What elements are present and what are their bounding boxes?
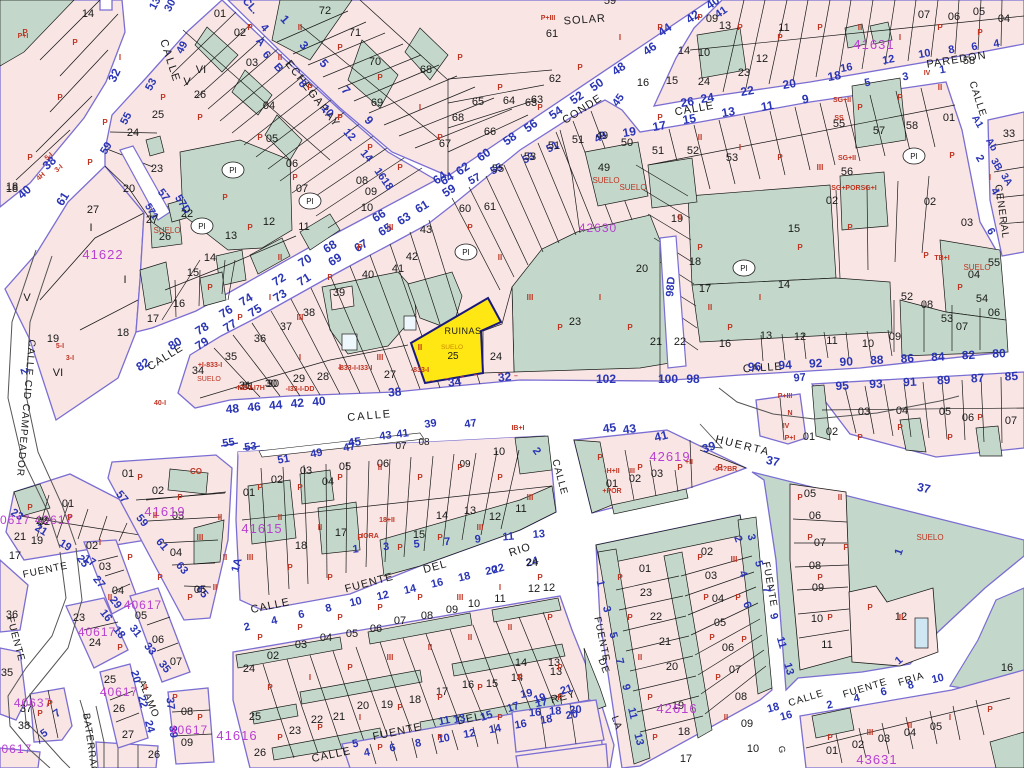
svg-text:P: P [847,223,853,232]
svg-text:10: 10 [468,598,480,610]
svg-text:-H+II: -H+II [604,468,619,475]
svg-text:P: P [292,173,298,182]
svg-text:P: P [160,93,166,102]
svg-text:03: 03 [99,561,111,573]
svg-text:29: 29 [293,373,305,385]
svg-text:03: 03 [651,468,663,480]
svg-text:P: P [437,133,443,142]
svg-text:II: II [143,683,147,692]
svg-text:01: 01 [639,563,651,575]
svg-text:61: 61 [546,28,558,40]
svg-text:21: 21 [659,636,671,648]
svg-text:I: I [989,173,991,182]
svg-text:11: 11 [502,531,515,544]
svg-text:26: 26 [113,703,125,715]
svg-text:52: 52 [687,145,699,157]
svg-text:P: P [677,463,683,472]
svg-text:07: 07 [1005,415,1017,427]
svg-text:05: 05 [346,628,358,640]
svg-text:12: 12 [489,511,501,523]
svg-text:14: 14 [436,510,448,522]
svg-text:P: P [317,723,323,732]
svg-text:40617: 40617 [0,742,32,756]
svg-text:IV: IV [924,70,931,77]
svg-text:16: 16 [173,298,185,310]
svg-text:-I33-I-DD: -I33-I-DD [286,386,315,393]
svg-text:02: 02 [234,27,246,39]
svg-text:P: P [857,103,863,112]
svg-text:20: 20 [636,263,648,275]
svg-text:P: P [37,709,43,718]
svg-text:14: 14 [678,45,690,57]
svg-text:5-I: 5-I [56,343,64,350]
svg-text:18: 18 [689,256,701,268]
svg-text:P: P [117,643,123,652]
svg-text:51: 51 [276,453,290,467]
svg-text:P: P [267,683,273,692]
svg-text:P: P [923,251,929,260]
svg-text:16: 16 [637,77,649,89]
svg-text:41: 41 [392,263,404,275]
svg-text:23: 23 [640,587,652,599]
svg-text:P: P [437,693,443,702]
svg-text:P: P [177,493,183,502]
svg-text:RUINAS: RUINAS [444,326,481,336]
svg-text:07: 07 [394,615,406,627]
svg-text:P: P [857,433,863,442]
svg-text:TB+I: TB+I [934,255,949,262]
svg-text:58: 58 [963,55,975,67]
svg-text:59: 59 [604,0,616,7]
svg-text:09: 09 [446,604,458,616]
svg-text:06: 06 [988,307,1000,319]
svg-text:05: 05 [973,6,985,18]
svg-text:I: I [949,713,951,722]
svg-text:80: 80 [992,346,1006,361]
svg-text:35: 35 [1,667,13,679]
svg-text:P: P [297,623,303,632]
svg-text:94: 94 [778,358,792,373]
svg-text:III: III [527,293,534,302]
svg-text:20: 20 [666,661,678,673]
svg-text:08: 08 [921,299,933,311]
svg-text:P: P [949,151,955,160]
svg-text:15: 15 [788,223,800,235]
svg-text:04: 04 [998,13,1010,25]
svg-text:–: – [514,373,518,380]
svg-text:N: N [787,410,792,417]
svg-text:SG+PORSG+I: SG+PORSG+I [831,185,877,192]
svg-text:II: II [223,553,227,562]
svg-text:88: 88 [870,353,884,368]
svg-text:10: 10 [698,47,710,59]
svg-text:13: 13 [532,528,545,541]
svg-text:04: 04 [896,405,908,417]
svg-text:SG+II: SG+II [833,97,851,104]
svg-text:41619: 41619 [144,504,185,519]
svg-text:18: 18 [295,540,307,552]
svg-text:SUELO: SUELO [197,376,221,383]
svg-text:09: 09 [741,718,753,730]
svg-text:II: II [278,53,282,62]
svg-text:P: P [517,673,523,682]
svg-text:P: P [797,243,803,252]
svg-text:P: P [657,23,663,32]
svg-text:14: 14 [778,279,790,291]
svg-text:06: 06 [152,634,164,646]
svg-text:02: 02 [701,546,713,558]
svg-text:-833-I-I33-I: -833-I-I33-I [338,365,373,372]
svg-text:40: 40 [312,394,327,409]
svg-text:P: P [697,553,703,562]
svg-text:03: 03 [295,639,307,651]
svg-text:72: 72 [319,5,331,17]
svg-text:08: 08 [181,706,193,718]
svg-text:10: 10 [917,47,931,61]
svg-text:II: II [678,213,682,222]
svg-text:12: 12 [794,331,806,343]
svg-text:05: 05 [339,461,351,473]
svg-text:P: P [977,413,983,422]
svg-text:24: 24 [700,90,716,106]
svg-text:49: 49 [598,162,610,174]
svg-text:PI: PI [229,166,237,175]
svg-text:P: P [617,573,623,582]
svg-text:96: 96 [748,359,762,374]
svg-text:13: 13 [464,505,476,517]
svg-text:P: P [537,573,543,582]
svg-text:SUELO: SUELO [619,183,646,192]
svg-text:I: I [89,222,92,234]
svg-text:P: P [57,93,63,102]
svg-text:05: 05 [714,617,726,629]
svg-text:51: 51 [572,134,584,146]
svg-text:P: P [172,693,178,702]
svg-text:66: 66 [484,126,496,138]
svg-text:II: II [724,713,728,722]
svg-text:41616: 41616 [216,728,257,743]
svg-text:39: 39 [333,287,345,299]
svg-text:III: III [817,163,824,172]
svg-text:26: 26 [148,749,160,761]
svg-text:II: II [153,511,157,520]
svg-text:V: V [23,292,31,304]
svg-text:–: – [430,378,434,385]
svg-text:P: P [647,693,653,702]
svg-text:P: P [197,113,203,122]
svg-text:46: 46 [247,399,262,414]
svg-text:12: 12 [462,727,476,741]
svg-text:PI: PI [740,264,748,273]
svg-text:60: 60 [459,203,471,215]
svg-text:14: 14 [82,8,94,20]
svg-text:20: 20 [782,76,798,92]
svg-text:85: 85 [1004,369,1018,384]
svg-text:19: 19 [381,699,393,711]
svg-text:1: 1 [352,543,359,555]
svg-text:P+III: P+III [541,15,556,22]
svg-text:19: 19 [31,535,43,547]
svg-text:P: P [287,563,293,572]
svg-text:21: 21 [333,711,345,723]
svg-text:40617: 40617 [100,685,138,699]
svg-text:P: P [709,633,715,642]
svg-text:01: 01 [62,498,74,510]
svg-text:P: P [257,633,263,642]
svg-text:P: P [637,463,643,472]
svg-text:II: II [278,253,282,262]
svg-text:P: P [827,733,833,742]
svg-text:42616: 42616 [656,701,697,716]
svg-text:SG+II: SG+II [838,155,856,162]
svg-text:43: 43 [379,429,393,443]
svg-text:P: P [897,93,903,102]
svg-text:V: V [183,76,191,88]
svg-text:P: P [47,699,53,708]
svg-text:P: P [557,323,563,332]
svg-text:P: P [187,593,193,602]
svg-text:P: P [222,193,228,202]
svg-text:15: 15 [187,267,199,279]
svg-text:III: III [247,553,254,562]
svg-text:IB+I: IB+I [511,425,524,432]
svg-text:25: 25 [152,109,164,121]
svg-text:53: 53 [941,313,953,325]
svg-text:P: P [347,663,353,672]
svg-text:II: II [638,653,642,662]
svg-text:54: 54 [976,293,988,305]
svg-text:90: 90 [839,354,853,369]
svg-text:+I-833-I: +I-833-I [198,362,222,369]
svg-text:P: P [337,613,343,622]
svg-text:18: 18 [409,694,421,706]
svg-text:12: 12 [756,53,768,65]
svg-text:49: 49 [309,447,323,461]
svg-text:87: 87 [970,371,984,386]
svg-text:P: P [137,473,143,482]
svg-text:P: P [697,243,703,252]
svg-text:55: 55 [492,163,504,175]
svg-text:08: 08 [735,691,747,703]
svg-text:09: 09 [365,186,377,198]
svg-text:P: P [547,613,553,622]
svg-text:III: III [387,223,394,232]
svg-text:-04?BR: -04?BR [713,466,738,473]
svg-text:II: II [218,513,222,522]
svg-text:27: 27 [146,214,158,226]
svg-text:68: 68 [452,112,464,124]
svg-text:P: P [627,613,633,622]
svg-text:P: P [247,23,253,32]
svg-text:03: 03 [705,570,717,582]
svg-text:P: P [977,28,983,37]
svg-text:70: 70 [369,56,381,68]
svg-text:P+III: P+III [778,393,793,400]
svg-text:II: II [938,83,942,92]
svg-text:17: 17 [680,753,692,765]
svg-text:13: 13 [452,712,466,726]
svg-text:64: 64 [503,95,515,107]
svg-text:24: 24 [526,557,538,569]
svg-text:04: 04 [112,585,124,597]
svg-text:26: 26 [680,94,696,110]
svg-text:VI: VI [196,64,206,76]
svg-text:23: 23 [738,67,750,79]
svg-text:03: 03 [246,57,258,69]
svg-text:PI: PI [462,248,470,257]
svg-text:P: P [797,493,803,502]
svg-text:16: 16 [719,338,731,350]
svg-text:37: 37 [280,321,292,333]
svg-text:10: 10 [361,202,373,214]
svg-text:P: P [735,593,741,602]
svg-text:P: P [337,43,343,52]
svg-text:02: 02 [271,474,283,486]
svg-text:P: P [467,223,473,232]
svg-text:09: 09 [181,737,193,749]
svg-text:42630: 42630 [579,221,617,235]
svg-text:04: 04 [712,593,724,605]
svg-text:P: P [817,23,823,32]
svg-text:06: 06 [370,623,382,635]
svg-text:P: P [72,38,78,47]
svg-text:P: P [715,673,721,682]
svg-text:11: 11 [821,639,832,651]
svg-text:P: P [843,543,849,552]
svg-text:P: P [27,153,33,162]
svg-text:89: 89 [937,373,951,388]
svg-text:25: 25 [447,351,459,362]
svg-text:71: 71 [349,27,361,39]
svg-text:27: 27 [87,204,99,216]
svg-text:17: 17 [9,550,21,562]
svg-text:+POR: +POR [602,488,621,495]
svg-text:18: 18 [549,705,562,718]
svg-text:P: P [27,503,33,512]
svg-text:P: P [557,693,563,702]
svg-text:SUELO: SUELO [153,226,180,235]
svg-text:04: 04 [322,476,334,488]
svg-text:93: 93 [869,376,883,391]
svg-text:P: P [557,663,563,672]
svg-text:04: 04 [320,632,332,644]
svg-text:III: III [867,728,874,737]
svg-text:II: II [698,133,702,142]
svg-text:21: 21 [14,531,26,543]
svg-text:II: II [838,493,842,502]
svg-text:13: 13 [760,330,772,342]
svg-text:III: III [527,493,534,502]
svg-text:P: P [357,243,363,252]
svg-text:III: III [629,468,635,475]
svg-text:P: P [741,635,747,644]
svg-text:10: 10 [811,613,823,625]
svg-text:20: 20 [123,183,135,195]
svg-text:P: P [417,473,423,482]
svg-text:12: 12 [543,582,555,594]
svg-text:19: 19 [519,687,533,701]
svg-text:PI: PI [306,197,314,206]
svg-text:23: 23 [73,612,85,624]
svg-text:P: P [652,733,658,742]
svg-text:P+I: P+I [785,435,796,442]
svg-text:P: P [257,133,263,142]
svg-text:I: I [599,293,601,302]
svg-text:100: 100 [658,372,678,386]
svg-text:+II: +II [685,459,693,466]
svg-text:22: 22 [740,83,756,99]
svg-text:P: P [497,473,503,482]
svg-text:95: 95 [835,378,849,393]
svg-text:20: 20 [569,704,582,717]
svg-text:57: 57 [873,125,885,137]
svg-text:P: P [577,63,583,72]
svg-text:II: II [108,593,112,602]
svg-text:26: 26 [254,747,266,759]
svg-text:II: II [498,253,502,262]
svg-text:SUELO: SUELO [916,533,943,542]
svg-text:84: 84 [931,349,945,364]
svg-text:–: – [498,371,502,378]
svg-text:09: 09 [706,13,718,25]
svg-text:P: P [497,83,503,92]
svg-text:II: II [298,23,302,32]
svg-text:III: III [197,533,204,542]
svg-text:58: 58 [906,120,918,132]
svg-text:P: P [777,33,783,42]
svg-text:03: 03 [878,733,890,745]
svg-text:02: 02 [267,650,279,662]
svg-text:P: P [207,283,213,292]
svg-text:P: P [437,533,443,542]
svg-text:P: P [257,483,263,492]
svg-text:P: P [457,463,463,472]
svg-text:P: P [737,23,743,32]
svg-text:I: I [419,103,421,112]
svg-text:P: P [337,113,343,122]
svg-text:40617: 40617 [170,723,208,737]
svg-text:22: 22 [650,611,662,623]
svg-text:03: 03 [858,406,870,418]
svg-text:04: 04 [263,100,275,112]
svg-text:P: P [937,23,943,32]
svg-text:10: 10 [493,446,505,458]
svg-text:22: 22 [181,208,193,220]
svg-text:II: II [318,523,322,532]
svg-text:102: 102 [596,372,616,386]
svg-text:11: 11 [437,714,451,728]
svg-text:P: P [377,603,383,612]
svg-text:12: 12 [263,216,275,228]
svg-text:40617: 40617 [78,625,116,639]
svg-text:III: III [387,653,394,662]
svg-text:23: 23 [569,316,581,328]
svg-text:I: I [123,274,126,286]
svg-text:P: P [397,703,403,712]
svg-text:36: 36 [254,333,266,345]
svg-text:P: P [867,603,873,612]
svg-text:62: 62 [549,73,561,85]
svg-text:08: 08 [418,437,430,448]
svg-text:86: 86 [900,351,914,366]
svg-text:18+II: 18+II [379,517,395,524]
svg-text:65: 65 [472,96,484,108]
svg-text:01: 01 [803,431,815,443]
svg-text:P: P [237,313,243,322]
svg-text:P: P [727,323,733,332]
svg-text:I: I [299,353,301,362]
svg-text:42: 42 [290,396,305,411]
